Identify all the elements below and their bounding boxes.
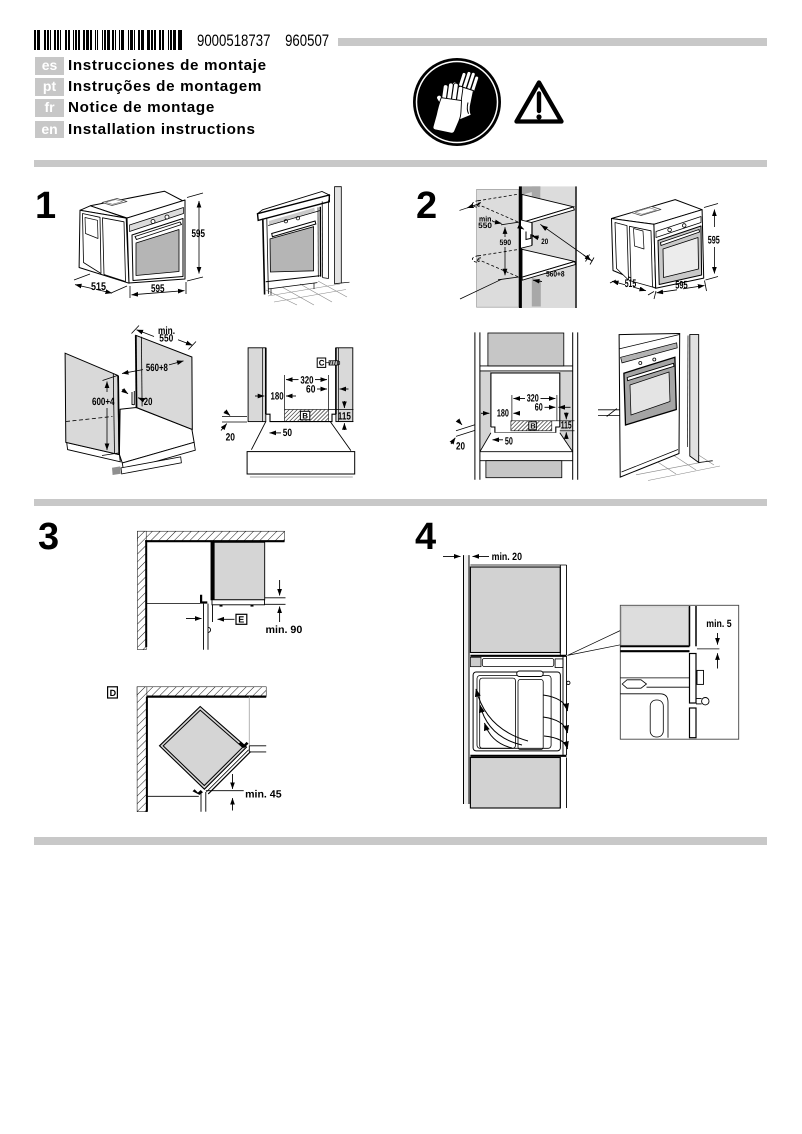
- svg-text:20: 20: [226, 432, 236, 444]
- svg-text:180: 180: [497, 408, 509, 420]
- svg-text:600+4: 600+4: [92, 396, 115, 408]
- svg-text:595: 595: [675, 280, 688, 292]
- svg-text:590: 590: [500, 238, 512, 247]
- svg-text:min. 90: min. 90: [266, 624, 303, 636]
- svg-text:20: 20: [144, 396, 153, 408]
- svg-text:50: 50: [505, 435, 513, 447]
- svg-text:D: D: [110, 688, 117, 698]
- svg-text:min. 5: min. 5: [706, 618, 731, 630]
- svg-text:515: 515: [625, 278, 637, 290]
- svg-text:550: 550: [478, 221, 492, 230]
- svg-text:550: 550: [159, 332, 173, 344]
- svg-text:515: 515: [91, 281, 106, 293]
- svg-text:min. 20: min. 20: [492, 551, 523, 563]
- svg-text:min. 45: min. 45: [245, 789, 282, 801]
- svg-text:60: 60: [535, 402, 543, 414]
- svg-text:C: C: [319, 359, 325, 368]
- svg-text:595: 595: [151, 283, 165, 295]
- svg-text:B: B: [302, 412, 308, 421]
- svg-text:595: 595: [708, 234, 720, 246]
- svg-text:180: 180: [271, 391, 284, 403]
- svg-text:E: E: [238, 615, 244, 625]
- svg-text:50: 50: [283, 427, 292, 439]
- svg-text:115: 115: [561, 419, 572, 431]
- svg-text:595: 595: [192, 228, 206, 240]
- svg-text:B: B: [530, 422, 536, 431]
- svg-text:20: 20: [456, 440, 465, 452]
- svg-text:20: 20: [541, 237, 548, 246]
- svg-text:560+8: 560+8: [146, 362, 168, 374]
- svg-text:60: 60: [306, 383, 316, 395]
- svg-text:560+8: 560+8: [546, 269, 565, 278]
- svg-text:115: 115: [338, 410, 351, 422]
